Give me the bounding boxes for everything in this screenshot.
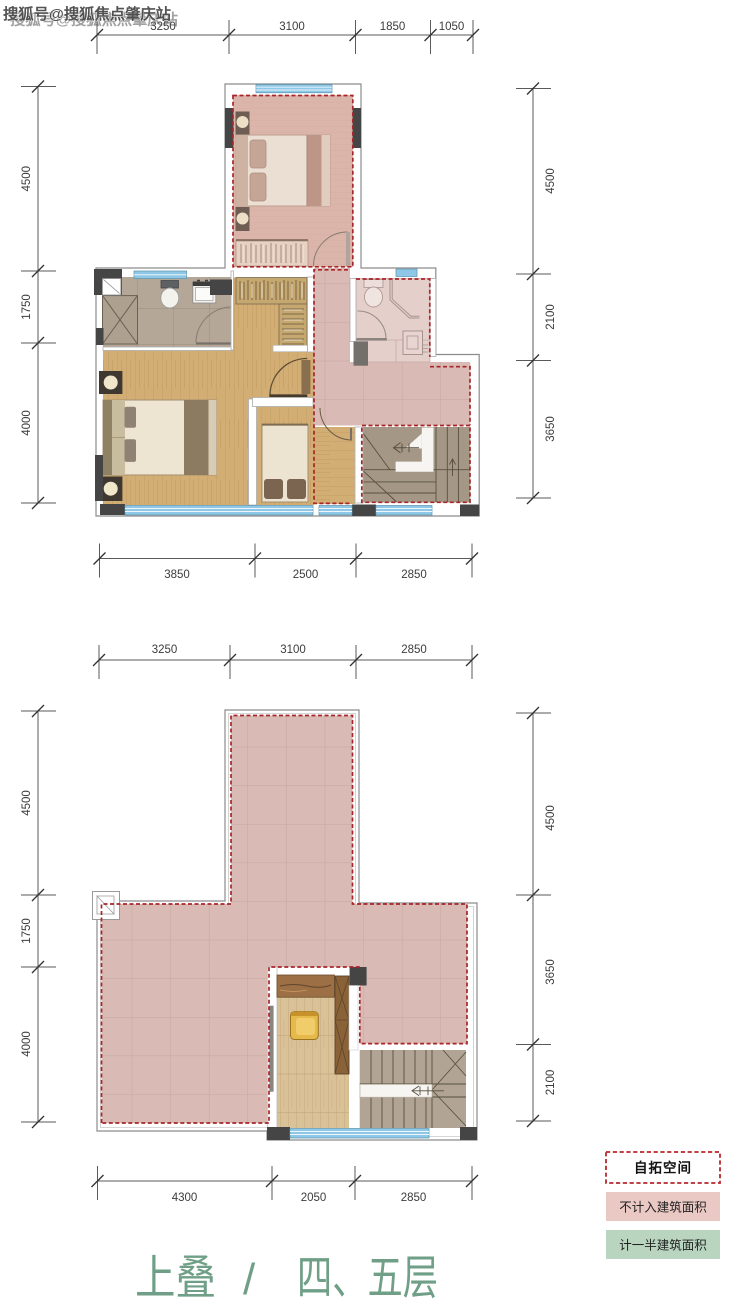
svg-text:2850: 2850 [401,1192,427,1204]
svg-text:3650: 3650 [545,959,557,985]
svg-text:4000: 4000 [21,1031,33,1057]
svg-text:不计入建筑面积: 不计入建筑面积 [619,1200,707,1215]
svg-text:3100: 3100 [279,21,305,33]
svg-text:搜狐号@搜狐焦点肇庆站: 搜狐号@搜狐焦点肇庆站 [3,5,171,23]
svg-text:自拓空间: 自拓空间 [634,1160,692,1176]
svg-text:4500: 4500 [21,166,33,192]
svg-text:四、五层: 四、五层 [297,1251,438,1304]
svg-text:2100: 2100 [545,304,557,330]
svg-text:计一半建筑面积: 计一半建筑面积 [619,1238,707,1253]
svg-text:4000: 4000 [21,410,33,436]
svg-text:4500: 4500 [545,805,557,831]
svg-text:3100: 3100 [280,644,306,656]
svg-text:3850: 3850 [164,569,190,581]
svg-text:/: / [243,1255,256,1304]
svg-text:1850: 1850 [380,21,406,33]
svg-text:4500: 4500 [21,790,33,816]
svg-text:1750: 1750 [21,918,33,944]
svg-text:2850: 2850 [401,644,427,656]
svg-text:2500: 2500 [293,569,319,581]
svg-text:3250: 3250 [152,644,178,656]
svg-text:1050: 1050 [439,21,465,33]
svg-text:上叠: 上叠 [135,1251,216,1304]
svg-text:3650: 3650 [545,416,557,442]
svg-text:4300: 4300 [172,1192,198,1204]
svg-text:1750: 1750 [21,294,33,320]
svg-text:2050: 2050 [301,1192,327,1204]
svg-text:4500: 4500 [545,168,557,194]
svg-text:2100: 2100 [545,1070,557,1096]
svg-text:2850: 2850 [401,569,427,581]
